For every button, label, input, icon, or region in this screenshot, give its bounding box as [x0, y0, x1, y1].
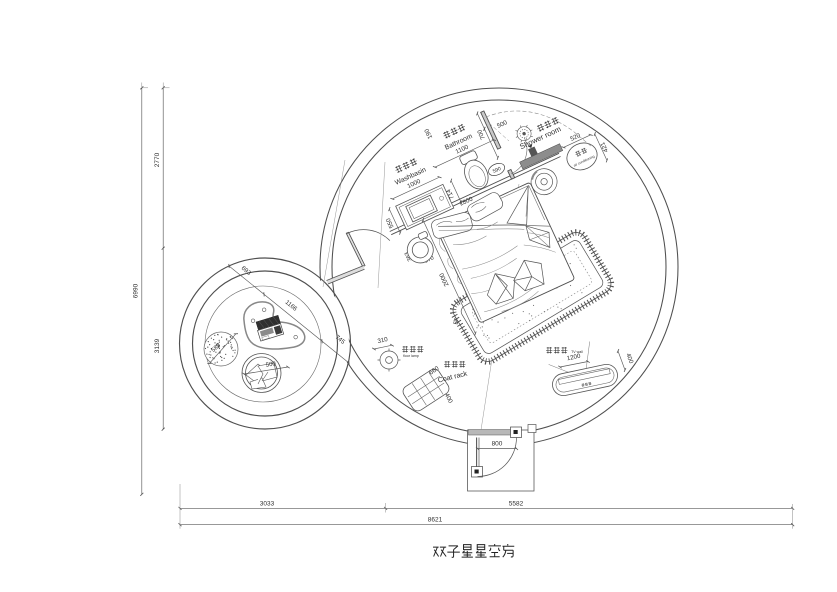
svg-text:800: 800	[492, 441, 503, 448]
svg-text:5582: 5582	[509, 501, 524, 508]
svg-text:3033: 3033	[260, 501, 275, 508]
svg-text:6990: 6990	[133, 283, 140, 298]
svg-text:8621: 8621	[428, 517, 443, 524]
svg-text:floor lamp: floor lamp	[403, 354, 419, 358]
svg-text:2770: 2770	[154, 152, 161, 167]
svg-text:3139: 3139	[154, 338, 161, 353]
